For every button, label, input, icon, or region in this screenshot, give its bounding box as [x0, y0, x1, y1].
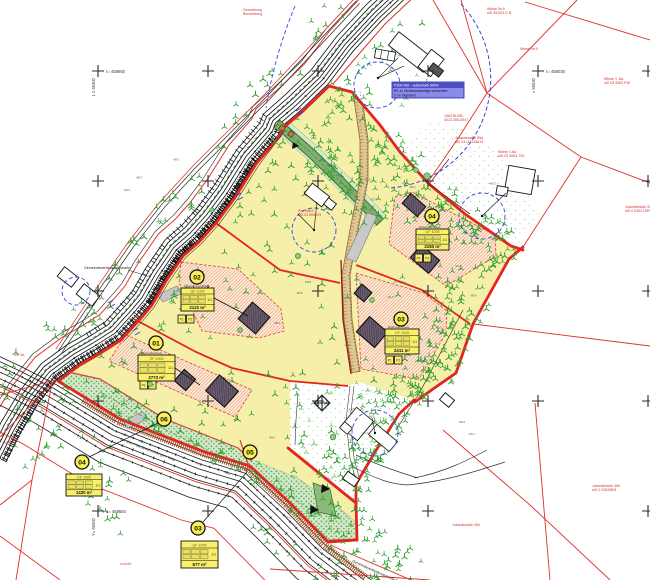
svg-text:r= 458030: r= 458030 [546, 69, 566, 74]
svg-text:04: 04 [78, 459, 86, 466]
svg-text:BK zu Heizkesselanlage vorhand: BK zu Heizkesselanlage vorhanden [394, 89, 448, 93]
svg-text:436.5: 436.5 [349, 408, 356, 411]
svg-text:GF 1005: GF 1005 [191, 290, 205, 294]
svg-text:03: 03 [194, 525, 202, 532]
svg-text:456.7: 456.7 [136, 177, 143, 180]
svg-text:P1: P1 [142, 384, 146, 388]
svg-text:677 m²: 677 m² [193, 562, 207, 567]
svg-text:444.9: 444.9 [387, 296, 394, 299]
svg-text:1/1: 1/1 [412, 340, 417, 344]
svg-text:2773 m²: 2773 m² [148, 375, 165, 380]
svg-text:494.2: 494.2 [269, 437, 276, 440]
svg-text:wD 03 065003: wD 03 065003 [298, 213, 321, 217]
svg-text:= 56030: = 56030 [531, 77, 536, 93]
svg-text:405.1: 405.1 [469, 433, 476, 436]
svg-text:P1: P1 [388, 359, 392, 363]
svg-text:04: 04 [428, 213, 436, 220]
svg-text:472.5: 472.5 [327, 478, 334, 481]
svg-text:441.3: 441.3 [362, 432, 369, 435]
svg-text:wD 03 3063 PW: wD 03 3063 PW [604, 81, 631, 85]
svg-text:P2: P2 [396, 359, 400, 363]
svg-text:GF 1005: GF 1005 [150, 357, 164, 361]
svg-text:460.3: 460.3 [345, 344, 352, 347]
svg-text:Blumenberg: Blumenberg [243, 12, 262, 16]
svg-text:450.3: 450.3 [400, 282, 407, 285]
svg-text:422.5: 422.5 [365, 178, 372, 181]
svg-text:2411 m²: 2411 m² [394, 348, 411, 353]
svg-text:Einfamilienhaus: Einfamilienhaus [141, 351, 163, 355]
svg-text:492.9: 492.9 [436, 326, 443, 329]
svg-text:3= 458650: 3= 458650 [106, 509, 127, 514]
svg-text:06: 06 [160, 416, 168, 423]
svg-text:01: 01 [152, 340, 160, 347]
svg-text:Einfamilienhaus: Einfamilienhaus [419, 225, 441, 229]
svg-text:wfl. 5a: wfl. 5a [14, 353, 24, 357]
svg-text:469.9: 469.9 [471, 294, 478, 297]
svg-text:408.4: 408.4 [274, 322, 281, 325]
svg-text:r= 458650: r= 458650 [106, 69, 126, 74]
svg-text:3507a: 3507a [2, 441, 12, 445]
svg-text:05: 05 [246, 449, 254, 456]
svg-text:465.5: 465.5 [490, 183, 497, 186]
svg-text:1/1: 1/1 [211, 553, 216, 557]
svg-text:1420 m²: 1420 m² [76, 490, 93, 495]
svg-text:1/1: 1/1 [207, 298, 212, 302]
svg-text:486.2: 486.2 [126, 297, 133, 300]
svg-text:499.2: 499.2 [173, 159, 180, 162]
svg-text:472.3: 472.3 [291, 475, 298, 478]
svg-text:GF 1005: GF 1005 [77, 475, 91, 479]
svg-text:492.8: 492.8 [124, 189, 131, 192]
svg-text:490.8: 490.8 [305, 281, 312, 284]
svg-text:Leucht.: Leucht. [120, 562, 132, 566]
svg-text:1/1: 1/1 [95, 483, 100, 487]
svg-text:3013 355-0047: 3013 355-0047 [444, 118, 468, 122]
svg-text:Gemeindeverbindungsstraße: Gemeindeverbindungsstraße [84, 266, 130, 270]
svg-text:wD 03 -37133613: wD 03 -37133613 [455, 140, 483, 144]
svg-text:03: 03 [397, 316, 405, 323]
svg-text:GF 1005: GF 1005 [426, 230, 440, 234]
svg-text:wD 0 03633BN: wD 0 03633BN [592, 488, 617, 492]
svg-text:1 1 56300: 1 1 56300 [91, 77, 96, 96]
svg-text:Y= 56000: Y= 56000 [91, 517, 96, 536]
svg-text:P2: P2 [188, 318, 192, 322]
svg-text:P300 NSt - außerhalb 500m: P300 NSt - außerhalb 500m [394, 84, 439, 88]
svg-text:P2: P2 [425, 257, 429, 261]
svg-text:2122 m²: 2122 m² [189, 305, 206, 310]
svg-text:431.8: 431.8 [455, 265, 462, 268]
svg-text:wD 0 030C19Pn: wD 0 030C19Pn [625, 209, 650, 213]
svg-text:wD 35.003-D B: wD 35.003-D B [487, 11, 512, 15]
svg-text:1/1: 1/1 [442, 238, 447, 242]
svg-text:445.3: 445.3 [409, 186, 416, 189]
svg-text:477.3: 477.3 [394, 281, 401, 284]
svg-text:484.6: 484.6 [368, 416, 375, 419]
svg-text:Jukardstraße 35n: Jukardstraße 35n [452, 523, 480, 527]
svg-text:GF 1005: GF 1005 [193, 543, 207, 547]
svg-text:465.9: 465.9 [327, 164, 334, 167]
svg-text:wD 03 3063-700: wD 03 3063-700 [498, 154, 524, 158]
svg-text:GF 1005: GF 1005 [395, 331, 409, 335]
svg-text:5 m³ Ölgewinn: 5 m³ Ölgewinn [394, 93, 416, 97]
svg-text:Wiese Nr.9: Wiese Nr.9 [520, 47, 538, 51]
svg-text:1/1: 1/1 [168, 366, 173, 370]
svg-text:P1: P1 [417, 257, 421, 261]
svg-text:402.4: 402.4 [135, 316, 142, 319]
svg-text:2150 m²: 2150 m² [424, 244, 441, 249]
svg-text:465.8: 465.8 [297, 292, 304, 295]
svg-text:P1: P1 [180, 318, 184, 322]
svg-text:409.9: 409.9 [459, 421, 466, 424]
svg-text:462.1: 462.1 [344, 185, 351, 188]
svg-text:457.9: 457.9 [371, 199, 378, 202]
svg-text:02: 02 [193, 274, 201, 281]
